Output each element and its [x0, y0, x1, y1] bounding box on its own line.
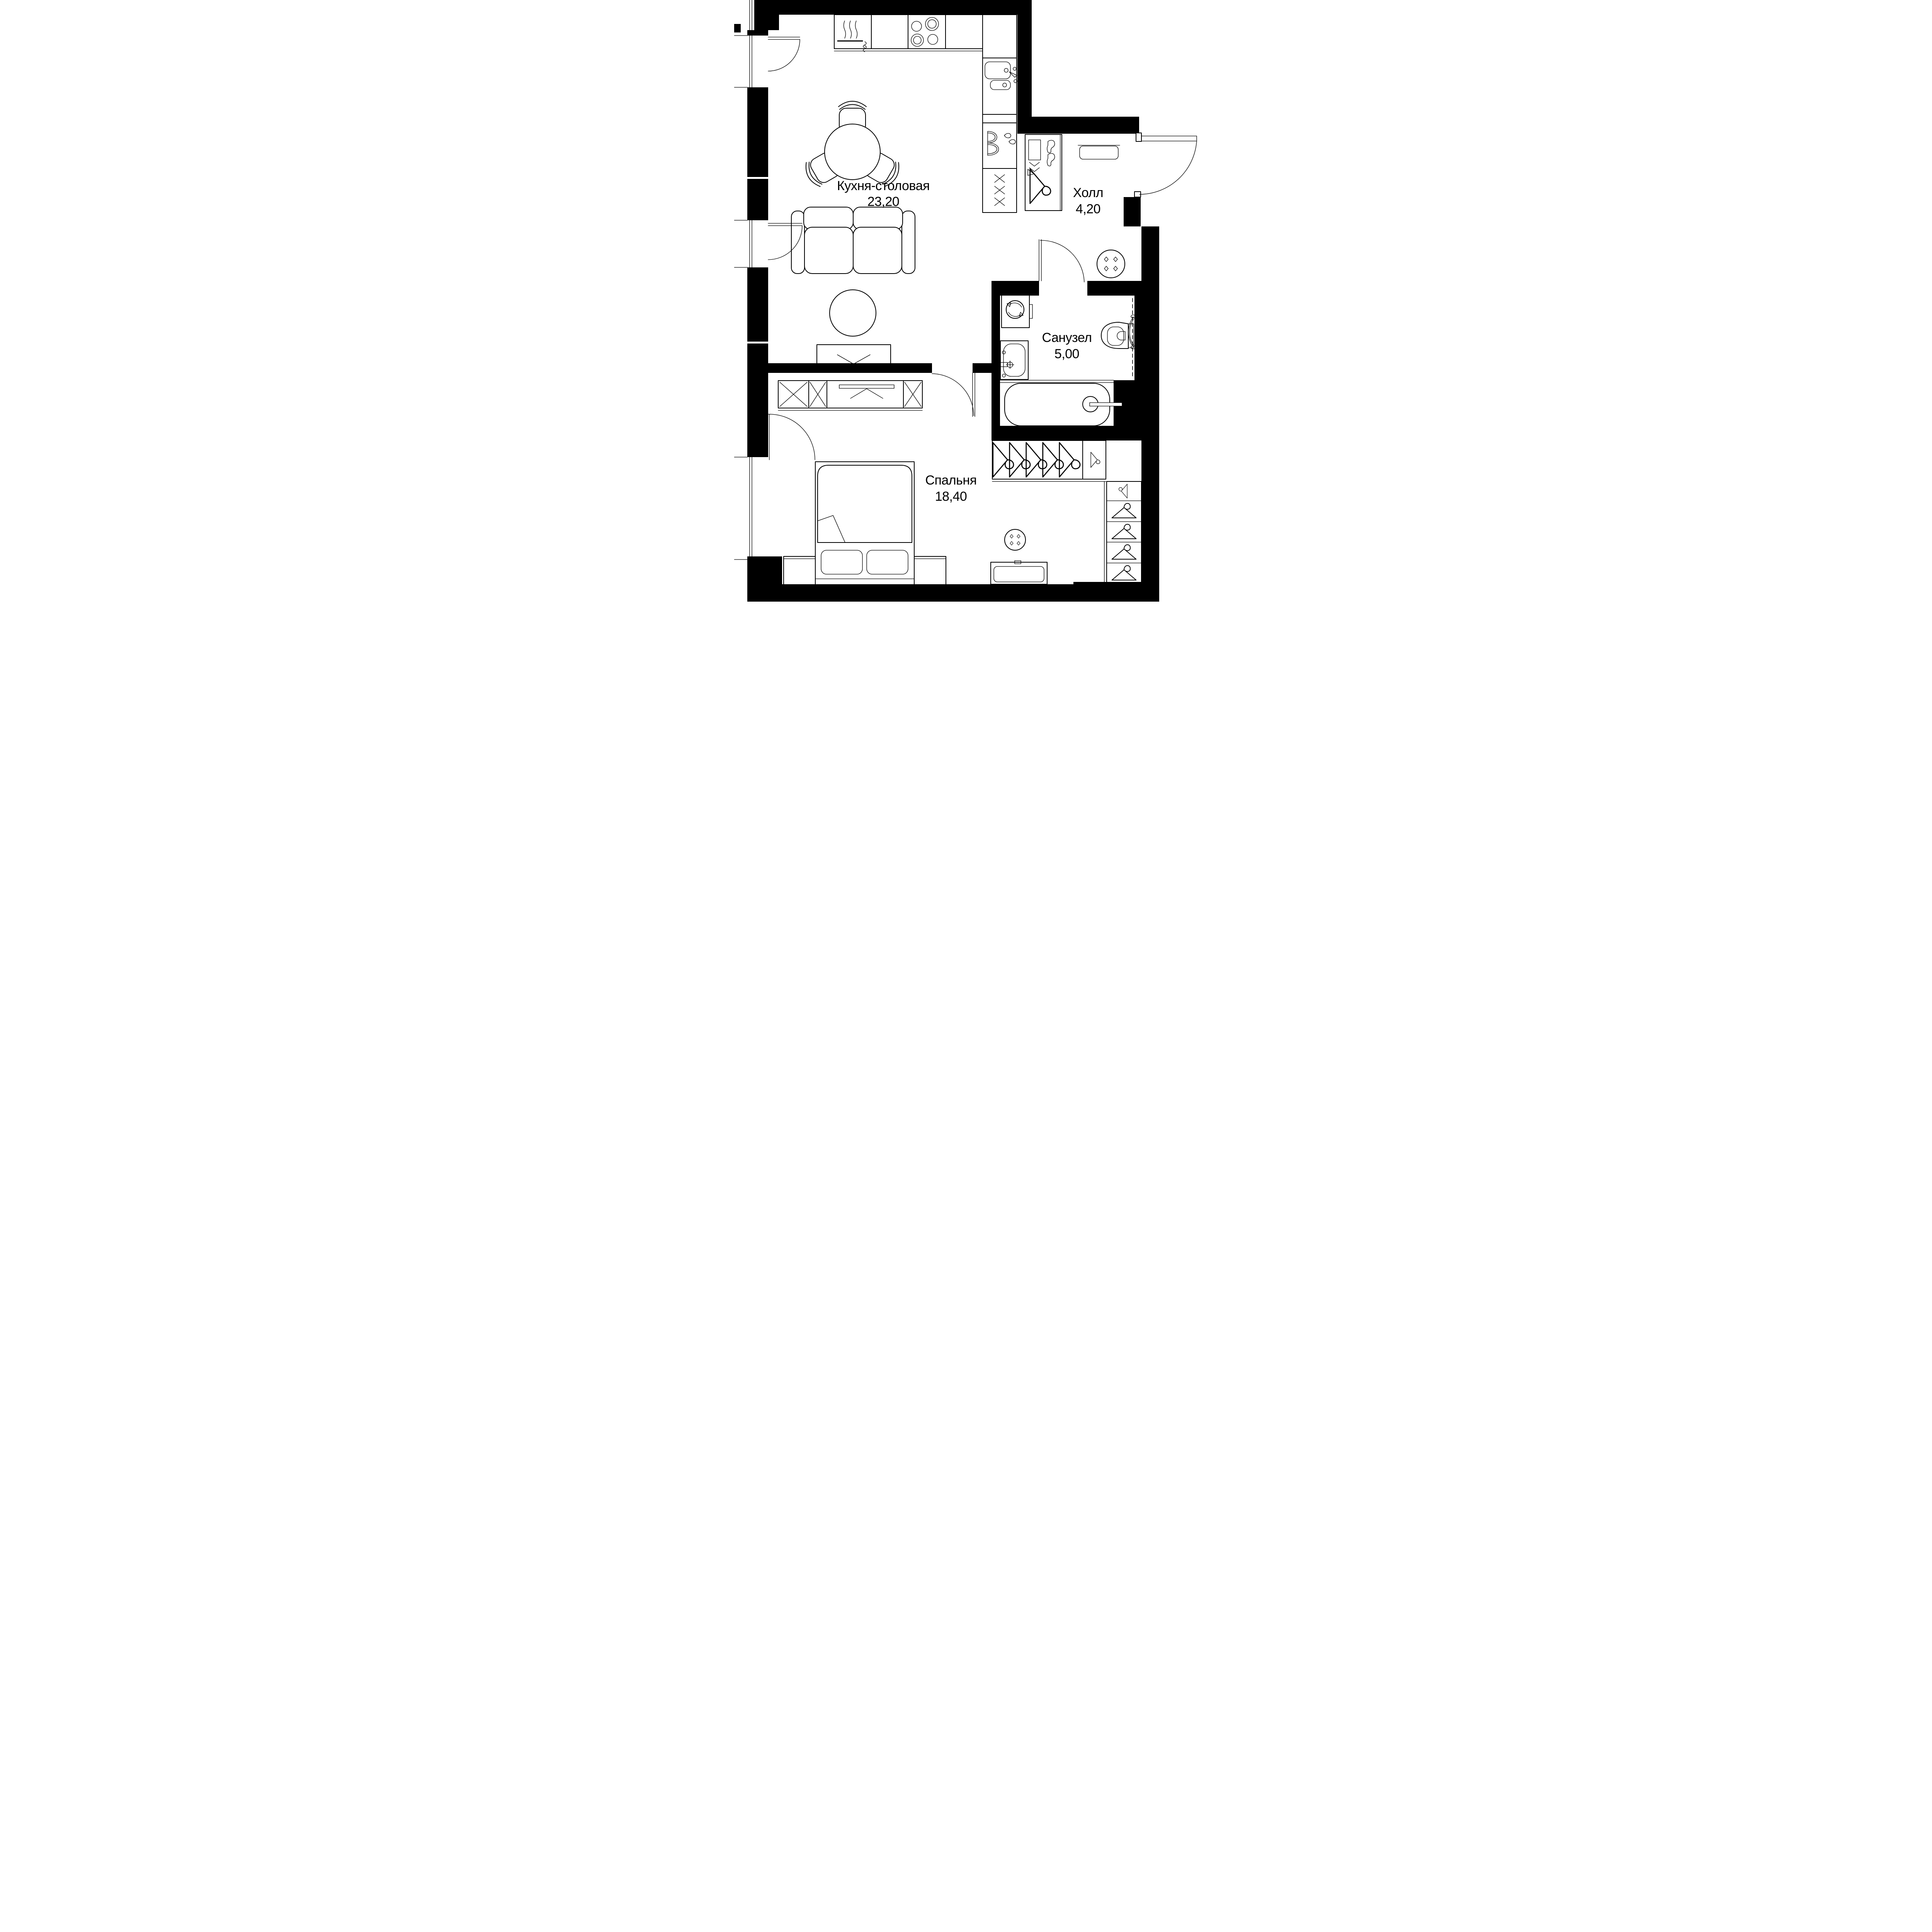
- pillow-icon: [867, 550, 908, 574]
- top-wall: [754, 0, 1032, 15]
- floor-plan-svg: Кухня-столовая 23,20 Холл 4,20 Санузел 5…: [734, 0, 1198, 602]
- bathtub-icon: [1005, 383, 1126, 426]
- wardrobe-icon: [1104, 481, 1141, 583]
- room-area-bedroom: 18,40: [935, 489, 967, 504]
- kitchen-column: [983, 15, 1017, 213]
- stool-icon: [1005, 529, 1026, 550]
- oven-icon: [838, 21, 866, 52]
- washing-machine-icon: [1002, 292, 1032, 328]
- kitchen-sink-icon: [985, 62, 1017, 90]
- room-area-bathroom: 5,00: [1054, 347, 1079, 361]
- sofa-icon: [791, 207, 915, 274]
- entrance-recess-wall: [1124, 197, 1141, 226]
- walls: [734, 0, 1159, 602]
- pantry-icon: [995, 175, 1005, 206]
- windows: [734, 0, 815, 560]
- side-table-icon: [1097, 250, 1125, 278]
- pillow-icon: [821, 550, 862, 574]
- bottom-left-corner: [747, 556, 782, 586]
- bathroom-bottom-wall: [992, 426, 1141, 440]
- room-label-bedroom: Спальня: [925, 473, 976, 488]
- bathroom-left-wall: [992, 296, 1000, 426]
- kitchen-duct-wall: [1017, 15, 1032, 134]
- doormat-icon: [1078, 145, 1120, 159]
- kitchen-counter: [834, 15, 983, 51]
- left-wall: [747, 87, 768, 220]
- floor-plan: Кухня-столовая 23,20 Холл 4,20 Санузел 5…: [734, 0, 1198, 602]
- kitchen-zone: [791, 15, 1017, 372]
- bathroom-top-wall: [992, 281, 1039, 296]
- coat-closet-icon: [1025, 134, 1062, 211]
- interior-door-icon: [932, 373, 975, 417]
- tv-icon: [837, 355, 870, 364]
- tv-icon: [850, 389, 883, 398]
- nightstand-icon: [784, 556, 946, 586]
- cooktop-icon: [911, 17, 939, 46]
- bedroom-cabinet-row: [778, 381, 922, 410]
- bed-icon: [815, 462, 914, 586]
- hall-top-wall: [1027, 117, 1139, 134]
- shoe-icon: [1047, 140, 1055, 166]
- top-left-wall-chunk: [754, 0, 779, 30]
- refrigerator-icon: [988, 131, 1015, 155]
- dresser-icon: [991, 561, 1047, 584]
- room-label-hall: Холл: [1073, 185, 1103, 200]
- washbasin-icon: [1000, 341, 1028, 379]
- hall-zone: [1025, 133, 1197, 278]
- room-label-bathroom: Санузел: [1042, 330, 1092, 345]
- entrance-door-icon: [1134, 133, 1197, 197]
- room-area-hall: 4,20: [1076, 202, 1100, 216]
- left-facade-tick: [734, 24, 741, 32]
- room-label-kitchen: Кухня-столовая: [837, 179, 930, 193]
- room-area-kitchen: 23,20: [867, 194, 900, 209]
- pouf-icon: [830, 290, 876, 336]
- dining-set: [802, 101, 903, 189]
- bottom-wall: [747, 584, 1073, 602]
- bathroom-right-wall: [1134, 296, 1141, 380]
- dining-table-icon: [825, 124, 880, 180]
- blanket-fold: [818, 515, 845, 543]
- wardrobe-icon: [992, 440, 1106, 481]
- right-wall: [1141, 226, 1159, 602]
- interior-door-icon: [1039, 240, 1084, 282]
